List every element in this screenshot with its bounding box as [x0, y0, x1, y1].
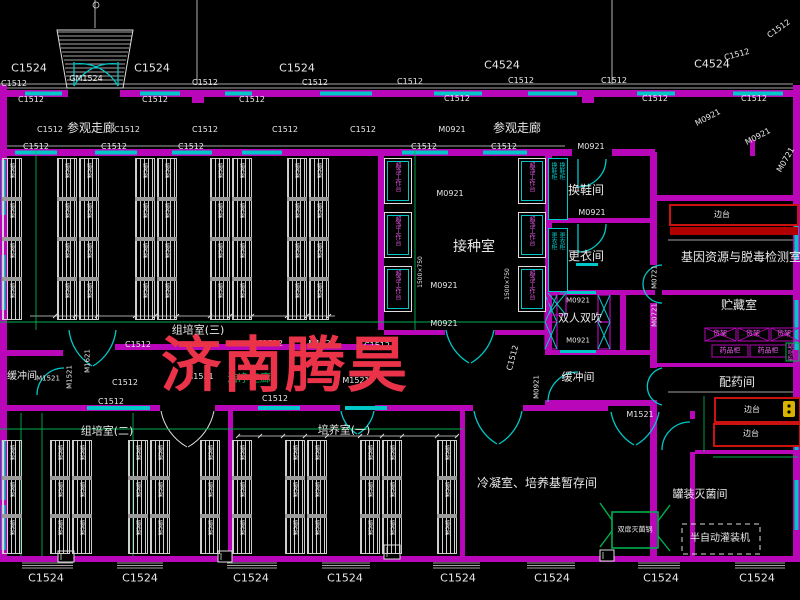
culture-rack: 培养架培养架培养架培养架: [210, 158, 230, 320]
sterilizer-arrow: [658, 505, 670, 521]
label-M0921: M0921: [436, 190, 463, 198]
label-C1524: C1524: [327, 573, 363, 584]
label-缓冲间: 缓冲间: [7, 372, 37, 382]
wall: [662, 290, 798, 295]
rack-label: 培养架: [367, 520, 372, 535]
label-C1512: C1512: [350, 126, 376, 134]
label-C1512: C1512: [411, 143, 437, 151]
rack-shelf-divider: [57, 197, 77, 201]
rack-label: 培养架: [292, 482, 297, 497]
label-C1512: C1512: [112, 379, 138, 387]
wall: [582, 90, 594, 103]
label-换鞋间: 换鞋间: [568, 184, 604, 196]
rack-label: 培养架: [142, 243, 147, 258]
cad-canvas: 培养架培养架培养架培养架培养架培养架培养架培养架培养架培养架培养架培养架培养架培…: [0, 0, 800, 600]
label-C1512: C1512: [178, 143, 204, 151]
label-基因资源与脱毒检测室: 基因资源与脱毒检测室: [681, 251, 800, 263]
door-arc: [647, 368, 662, 405]
sink-dot: [787, 410, 790, 413]
rack-shelf-divider: [210, 277, 230, 281]
window: [320, 92, 372, 96]
rack-shelf-divider: [200, 476, 220, 480]
wall: [0, 350, 63, 356]
rack-label: 培养架: [86, 283, 91, 298]
rack-label: 培养架: [86, 243, 91, 258]
label-C1512: C1512: [98, 398, 124, 406]
rack-shelf-divider: [128, 476, 148, 480]
rack-label: 培养架: [164, 283, 169, 298]
rack-label: 培养架: [135, 445, 140, 460]
clean-bench-label: 超净工作台: [528, 216, 534, 246]
shoe-cabinet-label: 换鞋柜: [558, 162, 564, 180]
label-M1521: M1521: [67, 365, 74, 389]
rack-label: 培养架: [86, 163, 91, 178]
clean-bench: 超净工作台: [518, 212, 546, 258]
rack-label: 培养架: [316, 243, 321, 258]
label-参观走廊: 参观走廊: [493, 122, 541, 134]
label-C1524: C1524: [11, 63, 47, 74]
rack-label: 培养架: [207, 482, 212, 497]
rack-shelf-divider: [2, 514, 22, 518]
culture-rack: 培养架培养架培养架: [285, 440, 305, 554]
rack-shelf-divider: [57, 277, 77, 281]
rack-label: 培养架: [142, 283, 147, 298]
rack-label: 培养架: [389, 520, 394, 535]
rack-label: 培养架: [314, 520, 319, 535]
column-block: [600, 550, 614, 561]
culture-rack: 培养架培养架培养架培养架: [287, 158, 307, 320]
label-双人双吹: 双人双吹: [558, 313, 602, 324]
wall: [620, 293, 626, 353]
label-C1512: C1512: [642, 95, 668, 103]
label-C1524: C1524: [440, 573, 476, 584]
door-arc: [446, 330, 469, 363]
wall: [192, 90, 204, 103]
label-冷凝室-培养基暂存间: 冷凝室、培养基暂存间: [477, 477, 597, 489]
rack-label: 培养架: [164, 203, 169, 218]
label-M1621: M1621: [85, 349, 92, 373]
clean-bench-label: 超净工作台: [394, 162, 400, 192]
rack-label: 培养架: [217, 203, 222, 218]
shoe-cabinet-label: 换鞋柜: [550, 162, 556, 180]
culture-rack: 培养架培养架培养架: [437, 440, 457, 554]
rack-shelf-divider: [2, 277, 22, 281]
label-M0921: M0921: [566, 338, 590, 345]
rack-shelf-divider: [72, 476, 92, 480]
rack-shelf-divider: [307, 514, 327, 518]
rack-label: 培养架: [142, 203, 147, 218]
label-C1512: C1512: [741, 95, 767, 103]
rack-label: 培养架: [64, 243, 69, 258]
rack-shelf-divider: [232, 514, 252, 518]
culture-rack: 培养架培养架培养架培养架: [232, 158, 252, 320]
wardrobe-label: 更衣柜: [550, 232, 556, 250]
rack-label: 培养架: [316, 203, 321, 218]
rack-label: 培养架: [239, 163, 244, 178]
label-M0921: M0921: [438, 126, 465, 134]
rack-label: 培养架: [79, 482, 84, 497]
label-1500-750: 1500×750: [505, 268, 511, 300]
door-arc: [93, 330, 116, 366]
rack-shelf-divider: [50, 514, 70, 518]
window: [795, 480, 799, 530]
rack-label: 培养架: [444, 482, 449, 497]
label-C1512: C1512: [272, 126, 298, 134]
wall: [650, 152, 657, 265]
rack-label: 培养架: [9, 163, 14, 178]
rack-shelf-divider: [360, 514, 380, 518]
sterilizer-arrow: [658, 536, 670, 551]
label-C1524: C1524: [643, 573, 679, 584]
rack-shelf-divider: [287, 277, 307, 281]
culture-rack: 培养架培养架培养架培养架: [309, 158, 329, 320]
window: [483, 151, 527, 155]
rack-shelf-divider: [307, 476, 327, 480]
rack-shelf-divider: [437, 514, 457, 518]
rack-label: 培养架: [64, 163, 69, 178]
rack-label: 培养架: [217, 163, 222, 178]
label-双扉灭菌锅: 双扉灭菌锅: [618, 527, 653, 534]
clean-bench: 超净工作台: [518, 266, 546, 312]
wall: [695, 450, 798, 454]
label-C1512: C1512: [101, 143, 127, 151]
label-C4524: C4524: [484, 60, 520, 71]
rack-shelf-divider: [232, 476, 252, 480]
label-M0921: M0921: [430, 282, 457, 290]
rack-label: 培养架: [239, 520, 244, 535]
x-brace: [598, 322, 610, 349]
label-C1512: C1512: [37, 126, 63, 134]
label-C1524: C1524: [28, 573, 64, 584]
window: [87, 406, 150, 410]
label-C1512: C1512: [491, 143, 517, 151]
label-C1512: C1512: [142, 96, 168, 104]
label-货架: 货架: [777, 331, 791, 338]
sterilizer-arrow: [600, 531, 612, 547]
label-配药间: 配药间: [719, 376, 755, 388]
rack-shelf-divider: [200, 514, 220, 518]
rack-label: 培养架: [9, 243, 14, 258]
culture-rack: 培养架培养架培养架培养架: [157, 158, 177, 320]
label-C1512: C1512: [18, 96, 44, 104]
clean-bench: 超净工作台: [384, 158, 412, 204]
rack-label: 培养架: [389, 482, 394, 497]
culture-rack: 培养架培养架培养架培养架: [79, 158, 99, 320]
rack-label: 培养架: [142, 163, 147, 178]
rack-label: 培养架: [157, 482, 162, 497]
rack-label: 培养架: [367, 445, 372, 460]
rack-shelf-divider: [437, 476, 457, 480]
label-边台: 边台: [743, 430, 759, 438]
window: [172, 151, 212, 155]
rack-label: 培养架: [389, 445, 394, 460]
rack-shelf-divider: [382, 514, 402, 518]
culture-rack: 培养架培养架培养架: [382, 440, 402, 554]
rack-shelf-divider: [128, 514, 148, 518]
label-接种室: 接种室: [453, 240, 495, 254]
culture-rack: 培养架培养架培养架: [232, 440, 252, 554]
rack-label: 培养架: [294, 283, 299, 298]
label-罐装灭菌间: 罐装灭菌间: [673, 489, 728, 500]
column-block: [218, 551, 232, 562]
rack-label: 培养架: [164, 243, 169, 258]
wall: [612, 149, 655, 156]
rack-label: 培养架: [314, 482, 319, 497]
rack-shelf-divider: [79, 237, 99, 241]
wall: [495, 330, 545, 335]
rack-shelf-divider: [2, 476, 22, 480]
door-arc: [662, 422, 690, 450]
rack-shelf-divider: [287, 197, 307, 201]
label-货架: 货架: [746, 331, 760, 338]
rack-label: 培养架: [239, 445, 244, 460]
wall: [650, 406, 657, 560]
clean-bench: 超净工作台: [384, 266, 412, 312]
window: [242, 151, 282, 155]
rack-label: 培养架: [367, 482, 372, 497]
rack-label: 培养架: [207, 520, 212, 535]
rack-label: 培养架: [9, 203, 14, 218]
rack-label: 培养架: [314, 445, 319, 460]
label-C1524: C1524: [233, 573, 269, 584]
rack-shelf-divider: [79, 197, 99, 201]
rack-shelf-divider: [135, 197, 155, 201]
wall: [690, 411, 695, 419]
culture-rack: 培养架培养架培养架: [2, 440, 22, 554]
window: [95, 151, 137, 155]
wall: [460, 411, 465, 556]
window: [345, 406, 387, 410]
rack-label: 培养架: [239, 482, 244, 497]
wall: [657, 363, 798, 367]
culture-rack: 培养架培养架培养架: [50, 440, 70, 554]
label-药品柜: 药品柜: [758, 348, 779, 355]
rack-label: 培养架: [444, 445, 449, 460]
rack-label: 培养架: [9, 482, 14, 497]
label-C1524: C1524: [739, 573, 775, 584]
label-M1521: M1521: [626, 411, 653, 419]
label-M0921: M0921: [566, 298, 590, 305]
clean-bench: 超净工作台: [384, 212, 412, 258]
label-C1512: C1512: [114, 126, 140, 134]
label-C1524: C1524: [134, 63, 170, 74]
rack-label: 培养架: [9, 283, 14, 298]
window: [528, 92, 577, 96]
label-C1512: C1512: [444, 95, 470, 103]
label-M0921: M0921: [430, 320, 457, 328]
rack-shelf-divider: [157, 237, 177, 241]
label-参观走廊: 参观走廊: [67, 122, 115, 134]
rack-shelf-divider: [57, 237, 77, 241]
watermark-text: 济南腾昊: [161, 336, 409, 396]
rack-shelf-divider: [309, 197, 329, 201]
rack-label: 培养架: [57, 482, 62, 497]
rack-label: 培养架: [57, 520, 62, 535]
door-arc: [499, 411, 522, 444]
clean-bench: 超净工作台: [518, 158, 546, 204]
rack-label: 培养架: [64, 283, 69, 298]
rack-shelf-divider: [210, 197, 230, 201]
rack-shelf-divider: [360, 476, 380, 480]
label-组培室-二-: 组培室(二): [81, 426, 134, 437]
label-缓冲间: 缓冲间: [562, 372, 595, 383]
window: [576, 263, 598, 266]
rack-label: 培养架: [79, 520, 84, 535]
rack-shelf-divider: [2, 197, 22, 201]
rack-shelf-divider: [135, 237, 155, 241]
label-C1512: C1512: [192, 79, 218, 87]
rack-label: 培养架: [294, 243, 299, 258]
label-边台: 边台: [744, 406, 760, 414]
rack-label: 培养架: [64, 203, 69, 218]
rack-label: 培养架: [294, 203, 299, 218]
rack-shelf-divider: [150, 476, 170, 480]
wardrobe-label: 更衣柜: [558, 232, 564, 250]
rack-shelf-divider: [135, 277, 155, 281]
wall: [375, 405, 473, 411]
culture-rack: 培养架培养架培养架: [200, 440, 220, 554]
rack-label: 培养架: [292, 520, 297, 535]
label-C1512: C1512: [397, 78, 423, 86]
label-半自动灌装机: 半自动灌装机: [690, 534, 750, 544]
rack-shelf-divider: [285, 476, 305, 480]
label-货架: 货架: [713, 331, 727, 338]
label-M0721: M0721: [652, 303, 659, 327]
sterilizer-arrow: [600, 503, 612, 520]
culture-rack: 培养架培养架培养架培养架: [135, 158, 155, 320]
rack-shelf-divider: [232, 277, 252, 281]
label-1500-750: 1500×750: [418, 256, 424, 288]
label-C1512: C1512: [302, 79, 328, 87]
clean-bench-label: 超净工作台: [528, 162, 534, 192]
culture-rack: 培养架培养架培养架: [150, 440, 170, 554]
rack-shelf-divider: [309, 237, 329, 241]
label-M0921: M0921: [577, 143, 604, 151]
shoe-cabinet: 换鞋柜换鞋柜: [548, 158, 568, 220]
label-C1512: C1512: [23, 143, 49, 151]
culture-rack: 培养架培养架培养架培养架: [57, 158, 77, 320]
label-C1512: C1512: [192, 126, 218, 134]
label-药品柜: 药品柜: [789, 343, 795, 361]
rack-shelf-divider: [157, 277, 177, 281]
label-培养室-一-: 培养室(一): [318, 425, 371, 436]
window: [560, 350, 596, 353]
sink-icon: [783, 401, 795, 417]
door-arc: [578, 224, 606, 252]
rack-label: 培养架: [316, 163, 321, 178]
window: [258, 406, 300, 410]
label-C1524: C1524: [534, 573, 570, 584]
window: [402, 151, 448, 155]
label-更衣间: 更衣间: [568, 250, 604, 262]
rack-label: 培养架: [292, 445, 297, 460]
rack-shelf-divider: [210, 237, 230, 241]
label-C1512: C1512: [239, 96, 265, 104]
side-bench-solid: [670, 227, 798, 235]
door-arc: [471, 330, 494, 363]
rack-shelf-divider: [232, 197, 252, 201]
wall: [523, 405, 608, 411]
rack-label: 培养架: [9, 520, 14, 535]
culture-rack: 培养架培养架培养架培养架: [2, 158, 22, 320]
rack-label: 培养架: [135, 482, 140, 497]
clean-bench-label: 超净工作台: [394, 216, 400, 246]
label-C1512: C1512: [1, 80, 27, 88]
rack-label: 培养架: [157, 520, 162, 535]
datum-mark: [93, 2, 99, 8]
culture-rack: 培养架培养架培养架: [128, 440, 148, 554]
rack-shelf-divider: [287, 237, 307, 241]
label-M0721: M0721: [652, 265, 659, 289]
label-C1512: C1512: [601, 77, 627, 85]
door-arc: [474, 411, 497, 444]
rack-label: 培养架: [207, 445, 212, 460]
culture-rack: 培养架培养架培养架: [307, 440, 327, 554]
rack-label: 培养架: [294, 163, 299, 178]
rack-shelf-divider: [50, 476, 70, 480]
rack-label: 培养架: [135, 520, 140, 535]
rack-label: 培养架: [239, 243, 244, 258]
rack-shelf-divider: [232, 237, 252, 241]
rack-label: 培养架: [86, 203, 91, 218]
rack-label: 培养架: [217, 283, 222, 298]
rack-shelf-divider: [2, 237, 22, 241]
rack-shelf-divider: [309, 277, 329, 281]
label-药品柜: 药品柜: [720, 348, 741, 355]
rack-label: 培养架: [57, 445, 62, 460]
rack-label: 培养架: [164, 163, 169, 178]
wardrobe: 更衣柜更衣柜: [548, 228, 568, 292]
rack-shelf-divider: [150, 514, 170, 518]
clean-bench-label: 超净工作台: [394, 270, 400, 300]
label-GM1524: GM1524: [69, 75, 102, 83]
rack-label: 培养架: [239, 283, 244, 298]
label-C1512: C1512: [508, 77, 534, 85]
culture-rack: 培养架培养架培养架: [360, 440, 380, 554]
culture-rack: 培养架培养架培养架: [72, 440, 92, 554]
rack-label: 培养架: [316, 283, 321, 298]
label-C1524: C1524: [122, 573, 158, 584]
side-bench: [670, 205, 798, 225]
rack-label: 培养架: [239, 203, 244, 218]
rack-label: 培养架: [79, 445, 84, 460]
clean-bench-label: 超净工作台: [528, 270, 534, 300]
sink-dot: [787, 404, 790, 407]
label-M0921: M0921: [534, 375, 541, 399]
label-边台: 边台: [714, 211, 730, 219]
rack-label: 培养架: [157, 445, 162, 460]
label-M1521: M1521: [36, 376, 60, 383]
label-M0921: M0921: [578, 209, 605, 217]
rack-label: 培养架: [217, 243, 222, 258]
label-C1512: C1512: [125, 341, 151, 349]
rack-shelf-divider: [79, 277, 99, 281]
rack-shelf-divider: [285, 514, 305, 518]
wall: [657, 195, 798, 201]
rack-shelf-divider: [72, 514, 92, 518]
rack-shelf-divider: [382, 476, 402, 480]
rack-label: 培养架: [9, 445, 14, 460]
label-贮藏室: 贮藏室: [721, 299, 757, 311]
rack-shelf-divider: [157, 197, 177, 201]
rack-label: 培养架: [444, 520, 449, 535]
label-C1524: C1524: [279, 63, 315, 74]
